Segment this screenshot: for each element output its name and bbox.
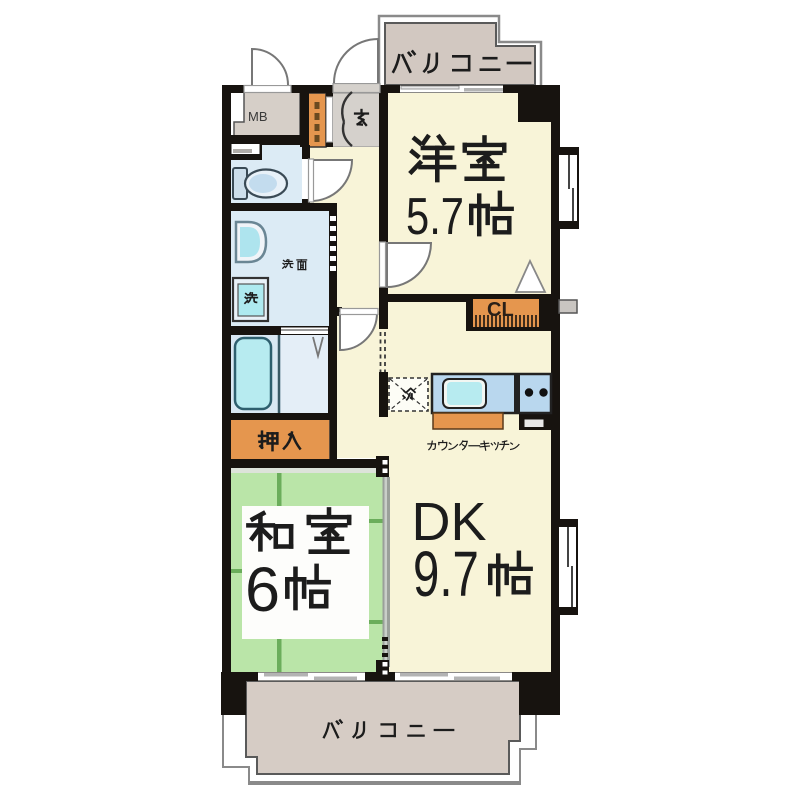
- svg-text:6: 6: [245, 555, 280, 625]
- svg-text:MB: MB: [248, 109, 268, 124]
- svg-text:CL: CL: [487, 299, 514, 321]
- svg-text:9.7: 9.7: [413, 538, 479, 610]
- svg-text:5.7: 5.7: [406, 188, 464, 245]
